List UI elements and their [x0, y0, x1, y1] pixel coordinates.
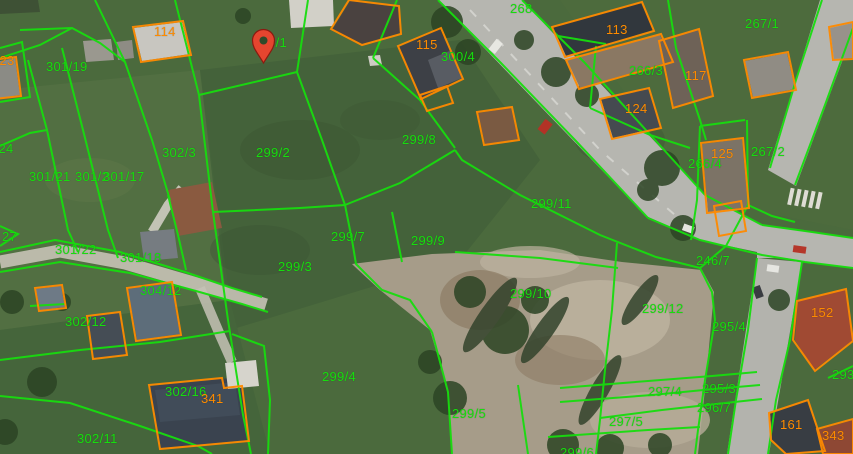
marker-hole	[259, 37, 267, 45]
parcel-label: 301/18	[120, 251, 162, 265]
building-label: 161	[780, 418, 803, 432]
parcel-label: 296/7	[697, 401, 731, 415]
parcel-label: 299/8	[402, 133, 436, 147]
building-label: 123	[0, 54, 15, 68]
parcel-label: 301/19	[46, 60, 88, 74]
parcel-label: 266/3	[629, 64, 663, 78]
parcel-label: 299/4	[322, 370, 356, 384]
parcel-label: 299/11	[531, 197, 572, 211]
map-viewport[interactable]: 301/19299/1302/3299/2299/8300/4268267/12…	[0, 0, 853, 454]
parcel-label: 267/1	[745, 17, 779, 31]
building-label: 343	[822, 429, 845, 443]
parcel-label: 293	[832, 368, 853, 382]
building-label: 115	[416, 38, 438, 52]
parcel-label: 301/17	[103, 170, 145, 184]
parcel-label: 299/6	[560, 446, 594, 454]
parcel-label: 301/24	[0, 142, 14, 156]
parcel-label: 267/2	[751, 145, 785, 159]
parcel-label: 246/7	[696, 254, 730, 268]
building-label: 113	[606, 23, 628, 37]
parcel-label: 299/5	[452, 407, 486, 421]
building-label: 152	[811, 306, 834, 320]
parcel-label: 297/4	[648, 385, 682, 399]
marker-body	[252, 30, 274, 64]
parcel-label: 302/11	[77, 432, 118, 446]
parcel-label: 295/3	[702, 382, 736, 396]
parcel-label: 295/4	[712, 320, 746, 334]
parcel-label: 27	[2, 230, 17, 244]
parcel-label: 302/12	[65, 315, 107, 329]
building-label: 114	[154, 25, 176, 39]
parcel-label: 299/3	[278, 260, 312, 274]
building-label: 124	[625, 102, 648, 116]
building-label: 341	[201, 392, 224, 406]
parcel-label: 268	[510, 2, 533, 16]
parcel-label: 299/7	[331, 230, 365, 244]
building-label: 125	[711, 147, 734, 161]
parcel-label: 299/10	[510, 287, 552, 301]
parcel-label: 301/21	[29, 170, 71, 184]
parcel-label: 302/3	[162, 146, 196, 160]
parcel-label: 299/2	[256, 146, 290, 160]
parcel-label: 300/4	[441, 50, 475, 64]
parcel-label: 299/12	[642, 302, 684, 316]
parcel-label: 297/5	[609, 415, 643, 429]
parcel-label: 304/12	[140, 284, 182, 298]
location-marker-icon[interactable]	[250, 28, 277, 64]
parcel-label: 299/9	[411, 234, 445, 248]
building-label: 117	[685, 69, 707, 83]
parcel-label: 301/22	[55, 243, 97, 257]
